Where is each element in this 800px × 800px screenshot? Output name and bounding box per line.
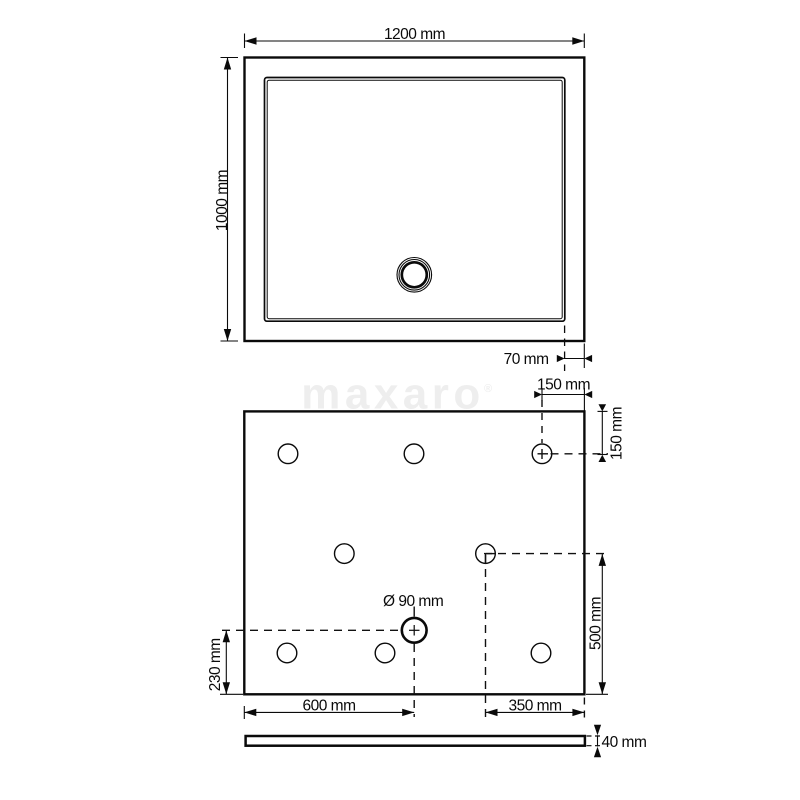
svg-text:230 mm: 230 mm: [207, 638, 224, 691]
svg-text:40 mm: 40 mm: [602, 734, 647, 751]
svg-text:Ø 90 mm: Ø 90 mm: [383, 593, 443, 610]
svg-text:150 mm: 150 mm: [537, 377, 590, 394]
svg-text:1200 mm: 1200 mm: [384, 26, 445, 43]
svg-text:500 mm: 500 mm: [588, 597, 605, 650]
svg-text:600 mm: 600 mm: [303, 698, 356, 715]
svg-text:1000 mm: 1000 mm: [214, 170, 231, 231]
svg-text:150 mm: 150 mm: [609, 407, 626, 460]
svg-text:®: ®: [484, 383, 492, 395]
svg-text:350 mm: 350 mm: [509, 698, 562, 715]
svg-text:70 mm: 70 mm: [504, 351, 549, 368]
